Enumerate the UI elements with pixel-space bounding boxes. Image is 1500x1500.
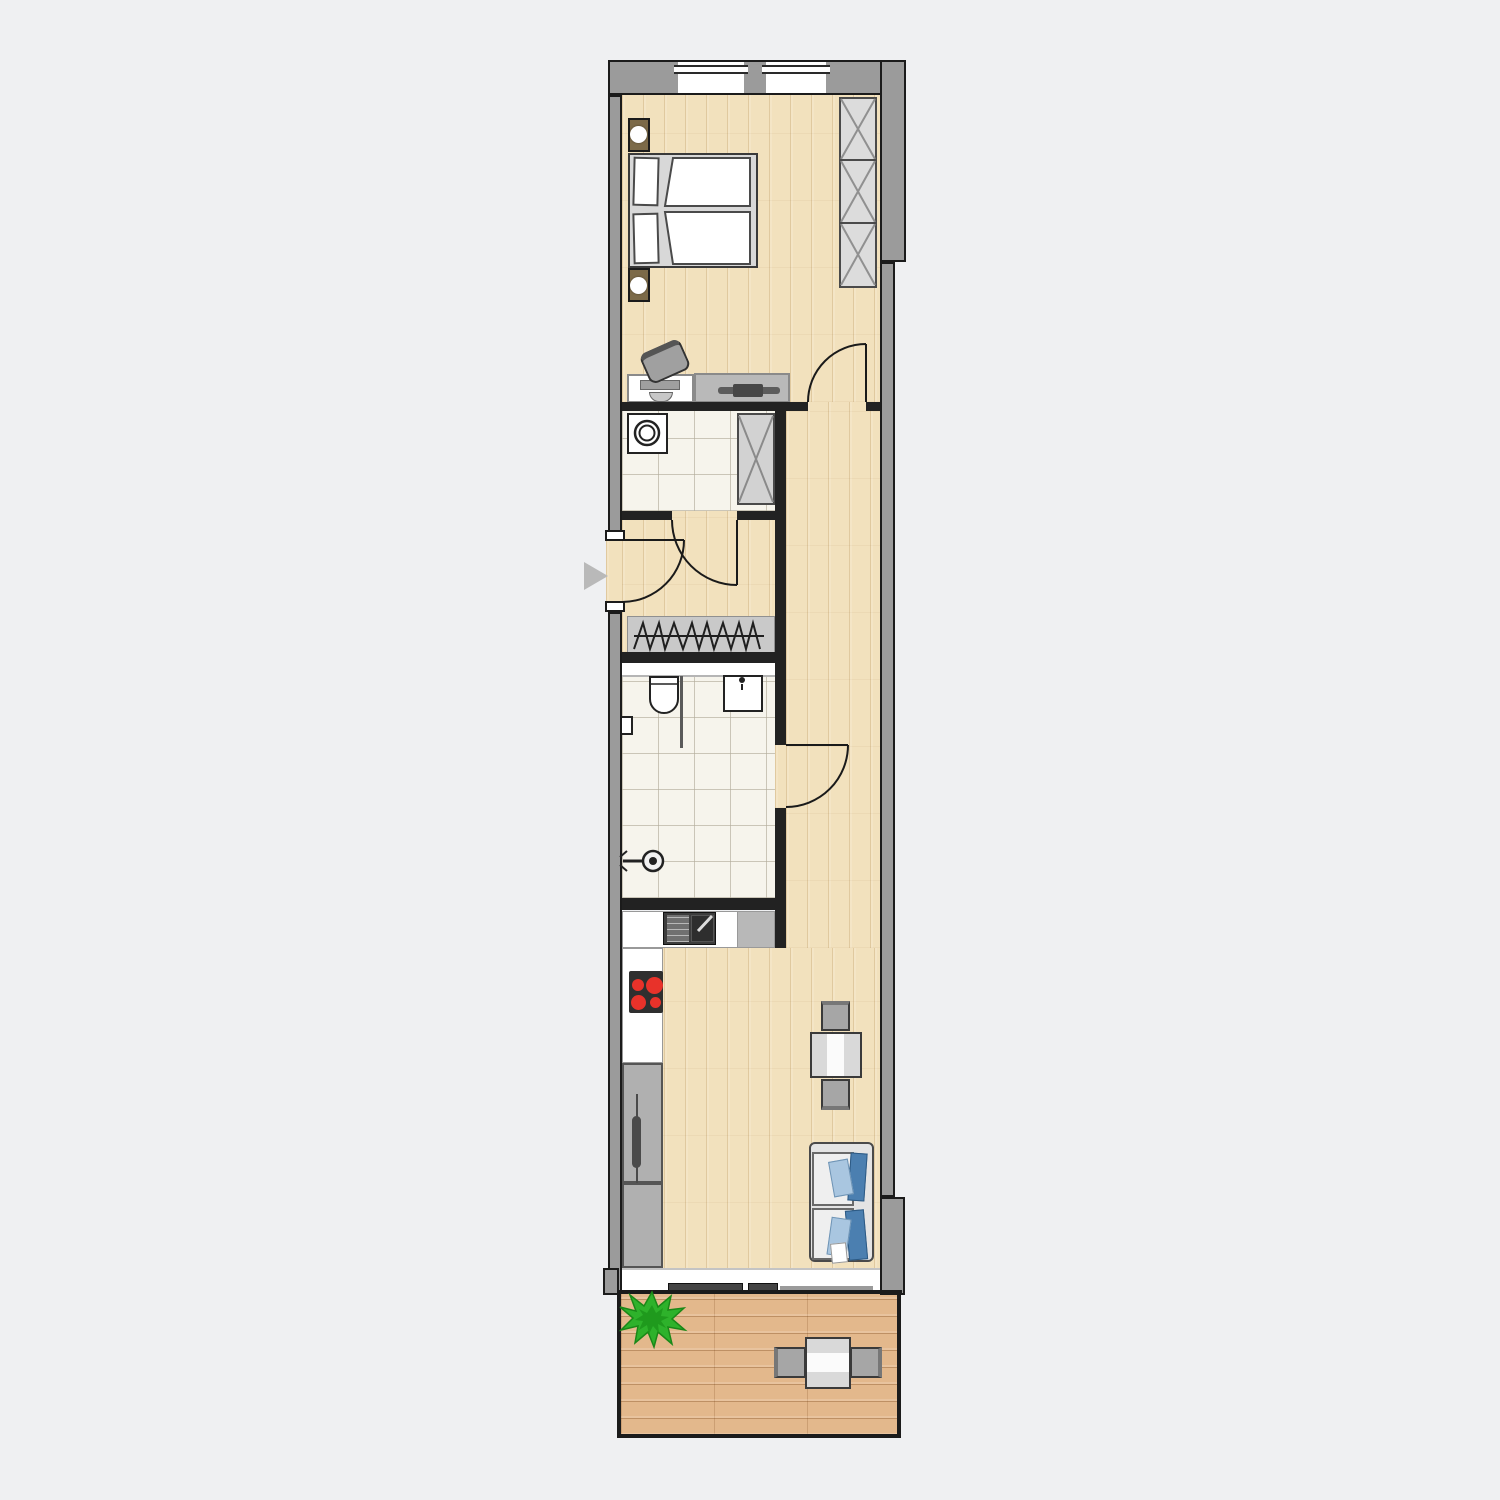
- burner-icon: [646, 977, 663, 994]
- lamp-icon: [630, 277, 647, 294]
- balcony-rail: [617, 1434, 901, 1438]
- lamp-icon: [630, 126, 647, 143]
- toilet: [649, 676, 679, 714]
- wall-utility-south: [737, 511, 786, 520]
- hallway-floor: [786, 402, 880, 948]
- wall-spine-lower: [775, 808, 786, 948]
- bed-pillow: [632, 157, 659, 207]
- window-glass-icon: [674, 65, 748, 74]
- dining-chair: [821, 1079, 850, 1110]
- balcony-rail: [617, 1290, 902, 1294]
- door-jamb: [605, 601, 625, 612]
- outdoor-chair: [774, 1347, 806, 1378]
- bathroom-doorway-floor: [775, 745, 786, 808]
- sofa-cushion-white: [830, 1242, 848, 1264]
- balcony-rail: [617, 1292, 621, 1438]
- balcony-rail: [897, 1292, 901, 1438]
- wall-bedroom-south: [866, 402, 880, 411]
- kitchen-counter-gray: [737, 911, 775, 948]
- wall-bathroom-north: [622, 652, 786, 663]
- tall-cabinet: [622, 1063, 663, 1183]
- wall-right: [880, 262, 895, 1197]
- outdoor-chair: [850, 1347, 882, 1378]
- bed-pillow: [632, 213, 659, 265]
- wall-spine-upper: [775, 411, 786, 745]
- wall-left: [608, 612, 622, 1292]
- dining-table-leaf: [827, 1034, 844, 1076]
- cabinet-handle-icon: [632, 1116, 641, 1168]
- burner-icon: [650, 997, 661, 1008]
- refrigerator-cabinet: [622, 1183, 663, 1268]
- wall-right-upper: [880, 60, 906, 262]
- door-jamb: [605, 530, 625, 541]
- wall-bathroom-south: [622, 898, 786, 910]
- washing-machine: [627, 413, 668, 454]
- sink-basin: [691, 915, 714, 942]
- floor-plan: [0, 0, 1500, 1500]
- shower-partition: [680, 676, 683, 748]
- tv-icon: [733, 384, 763, 397]
- wall-bedroom-south: [622, 402, 808, 411]
- window-glass-icon: [762, 65, 830, 74]
- wall-left: [608, 95, 622, 540]
- entrance-arrow-icon: [584, 562, 608, 590]
- coat-rack: [627, 616, 775, 654]
- outdoor-table-leaf: [807, 1353, 849, 1372]
- utility-cabinet: [737, 413, 775, 505]
- sink-drainer-icon: [667, 915, 689, 942]
- burner-icon: [632, 979, 644, 991]
- wall-right-lower: [880, 1197, 905, 1295]
- washbasin: [723, 675, 763, 712]
- dining-chair: [821, 1001, 850, 1031]
- entrance-doorway-floor: [606, 540, 622, 602]
- burner-icon: [631, 995, 646, 1010]
- wardrobe: [839, 97, 877, 288]
- wall-utility-south: [622, 511, 672, 520]
